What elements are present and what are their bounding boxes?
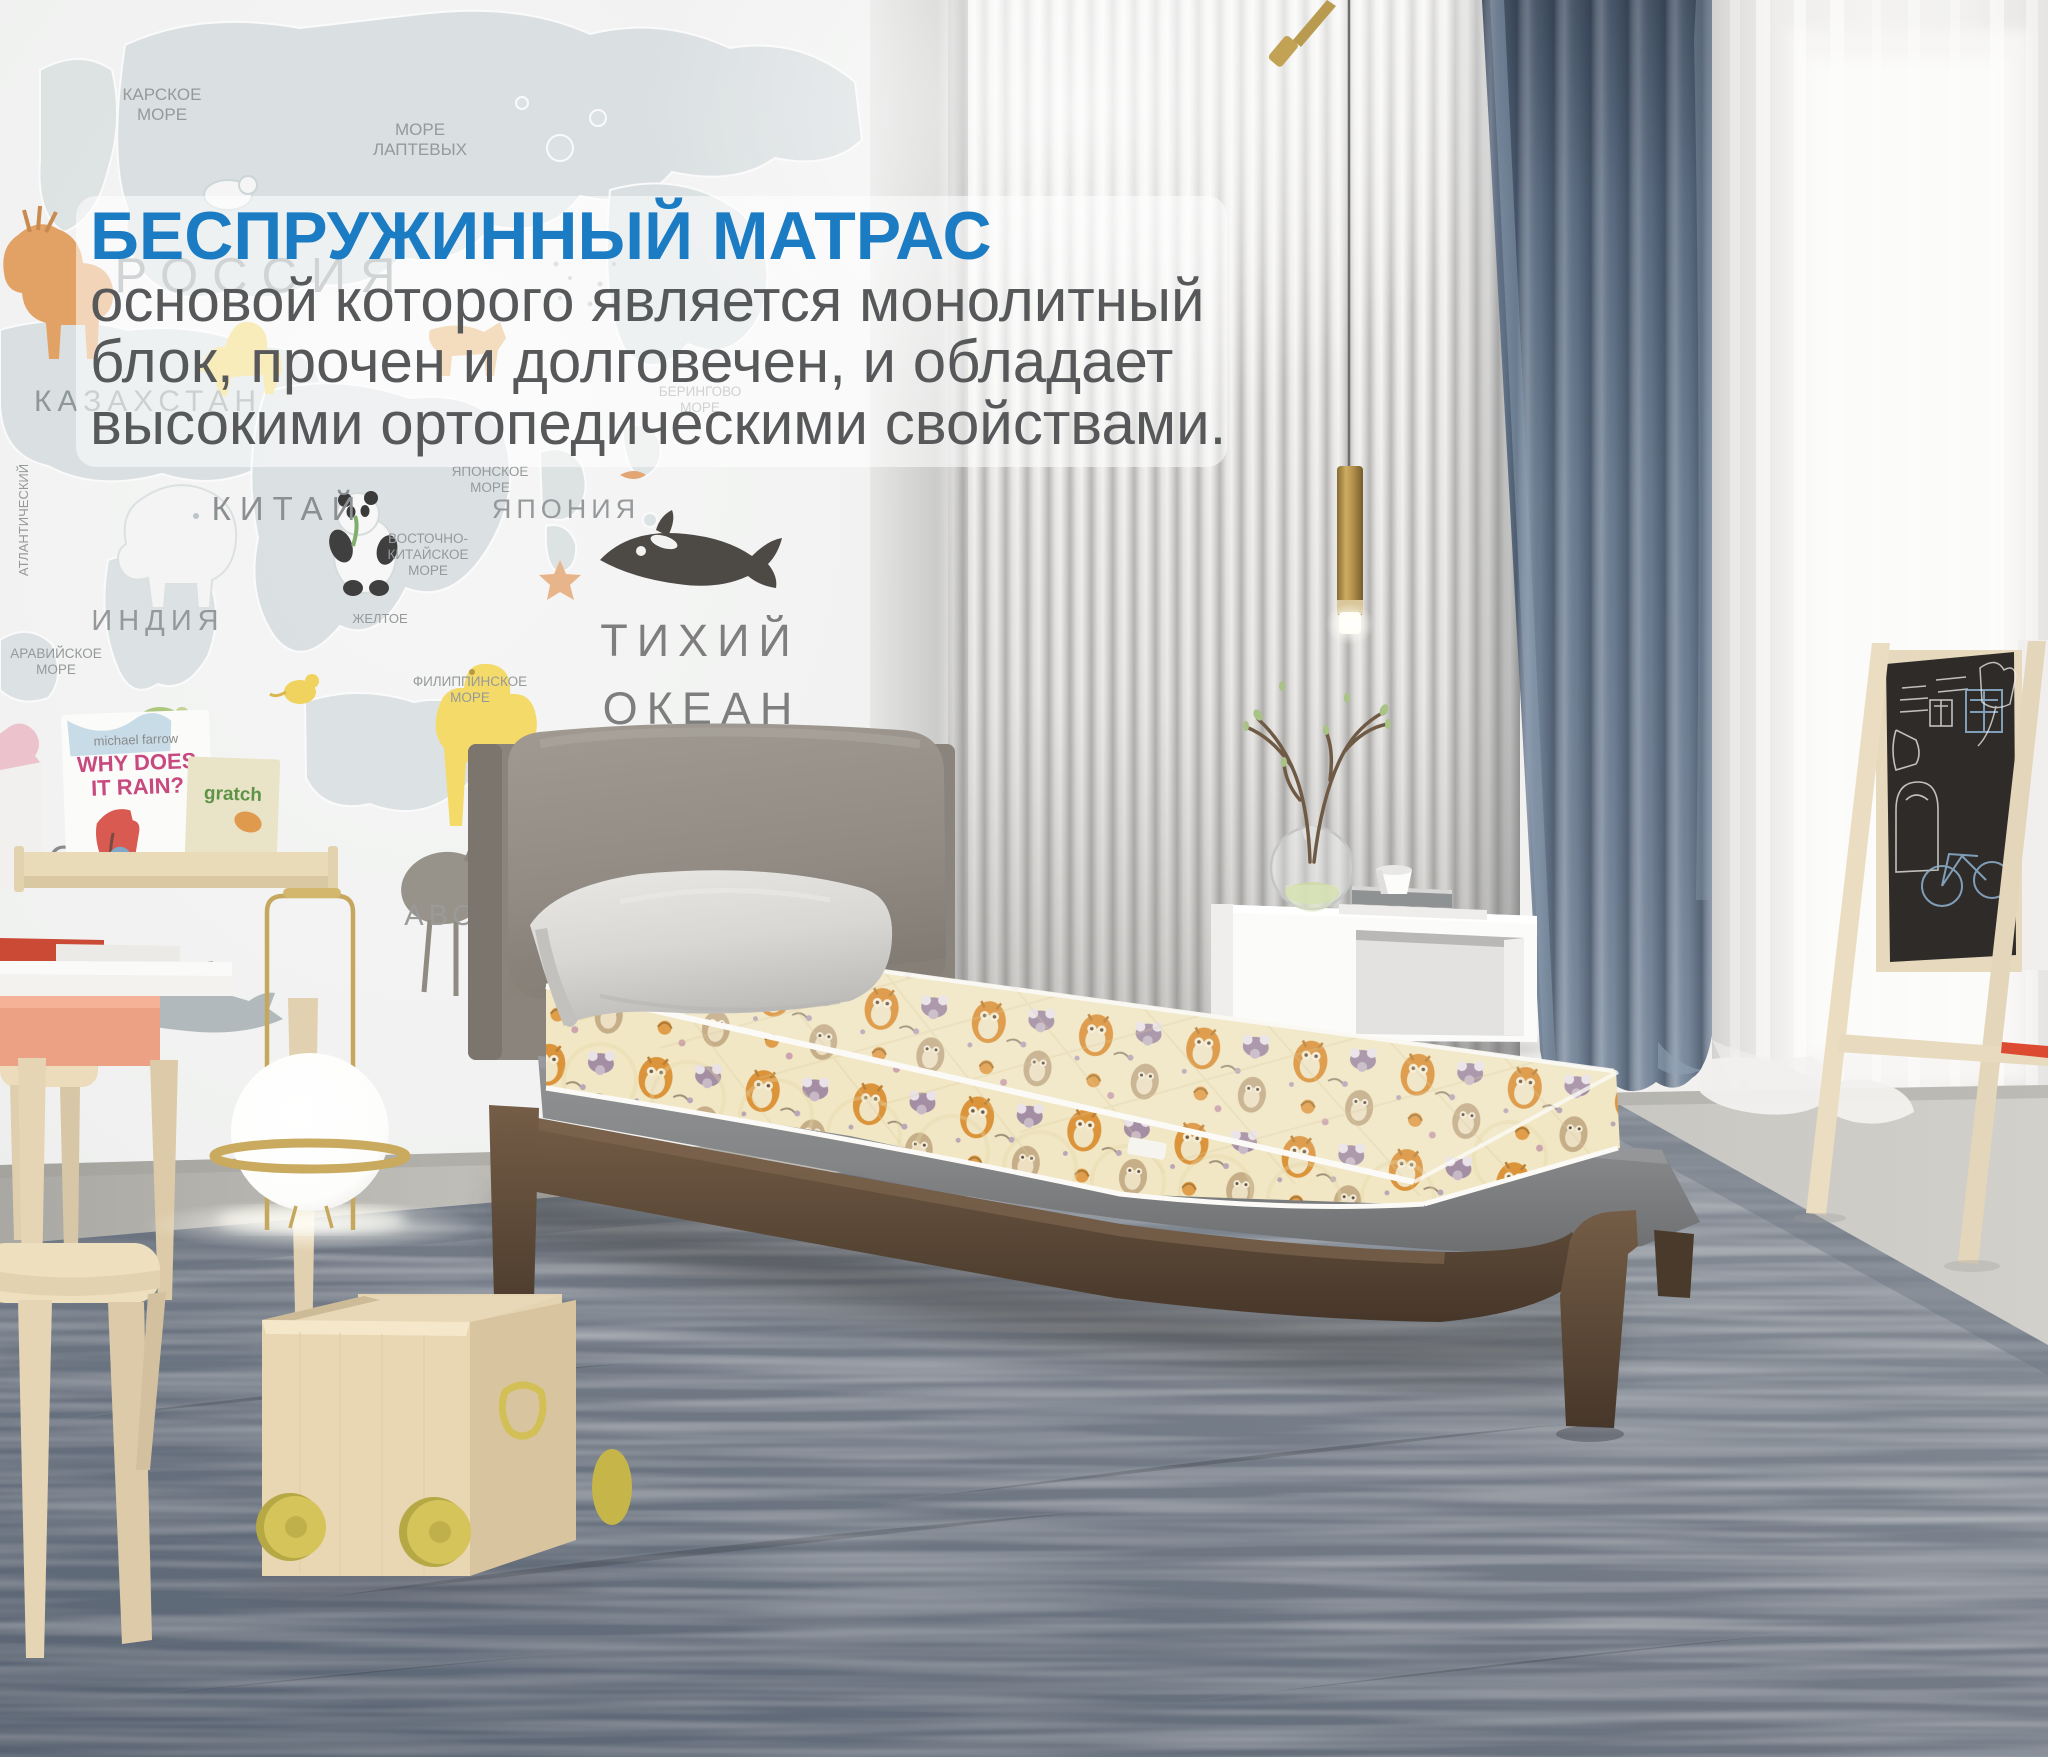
svg-text:МОРЕ: МОРЕ — [450, 690, 490, 705]
svg-text:МОРЕ: МОРЕ — [408, 563, 448, 578]
svg-text:МОРЕ: МОРЕ — [36, 662, 76, 677]
svg-text:gratch: gratch — [204, 783, 263, 806]
svg-text:высокими ортопедическими свойс: высокими ортопедическими свойствами. — [90, 390, 1226, 457]
svg-text:ИНДИЯ: ИНДИЯ — [91, 605, 224, 637]
svg-text:ЯПОНИЯ: ЯПОНИЯ — [492, 494, 640, 524]
svg-text:ВОСТОЧНО-: ВОСТОЧНО- — [388, 531, 468, 546]
svg-text:КИТАЙ: КИТАЙ — [212, 490, 365, 527]
svg-text:michael farrow: michael farrow — [93, 731, 179, 749]
svg-text:МОРЕ: МОРЕ — [137, 105, 187, 124]
svg-text:КАРСКОЕ: КАРСКОЕ — [123, 85, 202, 104]
svg-text:ФИЛИППИНСКОЕ: ФИЛИППИНСКОЕ — [413, 674, 527, 689]
svg-text:МОРЕ: МОРЕ — [395, 120, 445, 139]
svg-text:блок, прочен и долговечен, и о: блок, прочен и долговечен, и обладает — [90, 328, 1173, 395]
svg-text:ЖЕЛТОЕ: ЖЕЛТОЕ — [352, 611, 408, 626]
svg-text:МОРЕ: МОРЕ — [470, 480, 510, 495]
svg-text:БЕСПРУЖИННЫЙ МАТРАС: БЕСПРУЖИННЫЙ МАТРАС — [90, 197, 992, 274]
svg-text:АТЛАНТИЧЕСКИЙ: АТЛАНТИЧЕСКИЙ — [16, 464, 31, 576]
svg-text:IT RAIN?: IT RAIN? — [91, 772, 185, 800]
svg-text:ТИХИЙ: ТИХИЙ — [600, 615, 800, 666]
svg-text:КИТАЙСКОЕ: КИТАЙСКОЕ — [387, 547, 468, 562]
svg-text:ЛАПТЕВЫХ: ЛАПТЕВЫХ — [373, 140, 467, 159]
svg-text:АРАВИЙСКОЕ: АРАВИЙСКОЕ — [10, 646, 102, 661]
svg-text:основой которого является моно: основой которого является монолитный — [90, 267, 1205, 334]
